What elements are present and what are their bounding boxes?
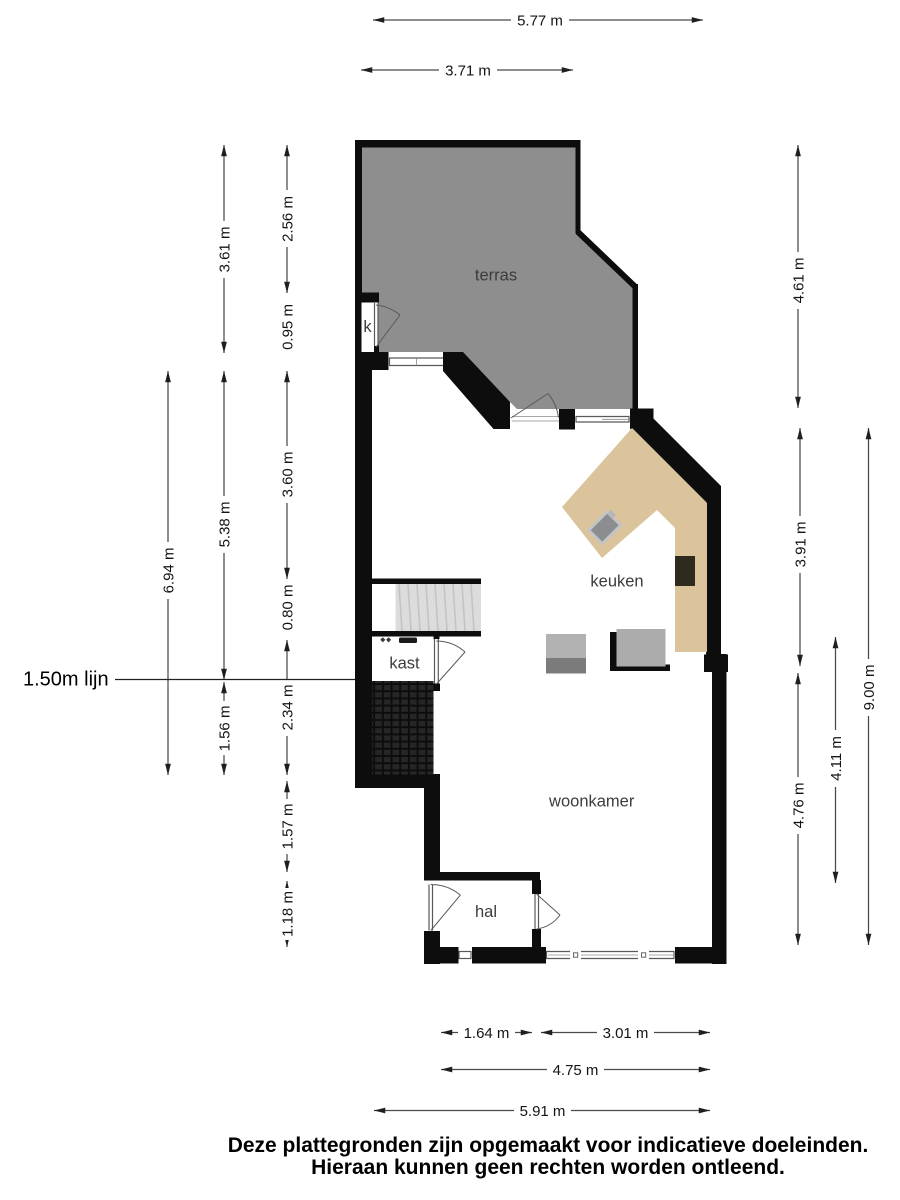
- svg-text:4.75 m: 4.75 m: [553, 1062, 599, 1079]
- svg-text:3.91 m: 3.91 m: [792, 522, 809, 568]
- svg-text:0.80 m: 0.80 m: [279, 585, 296, 631]
- svg-text:4.11 m: 4.11 m: [828, 736, 845, 781]
- svg-text:9.00 m: 9.00 m: [861, 665, 878, 711]
- svg-text:terras: terras: [475, 267, 517, 285]
- svg-text:6.94 m: 6.94 m: [160, 548, 177, 594]
- svg-text:hal: hal: [475, 903, 497, 921]
- svg-text:keuken: keuken: [590, 573, 643, 591]
- svg-text:5.91 m: 5.91 m: [520, 1103, 566, 1120]
- svg-text:1.57 m: 1.57 m: [279, 804, 296, 850]
- svg-text:woonkamer: woonkamer: [548, 793, 635, 811]
- svg-text:1.64 m: 1.64 m: [464, 1025, 510, 1042]
- svg-text:2.34 m: 2.34 m: [279, 685, 296, 731]
- svg-text:1.50m lijn: 1.50m lijn: [23, 669, 109, 691]
- svg-text:3.01 m: 3.01 m: [603, 1025, 649, 1042]
- svg-text:kast: kast: [389, 655, 420, 673]
- svg-text:4.76 m: 4.76 m: [790, 783, 807, 829]
- svg-text:5.38 m: 5.38 m: [216, 502, 233, 548]
- svg-text:5.77 m: 5.77 m: [517, 12, 563, 29]
- svg-text:3.60 m: 3.60 m: [279, 452, 296, 498]
- svg-text:k: k: [363, 318, 372, 336]
- svg-text:4.61 m: 4.61 m: [790, 258, 807, 304]
- svg-text:Hieraan kunnen geen rechten wo: Hieraan kunnen geen rechten worden ontle…: [311, 1156, 785, 1179]
- svg-text:2.56 m: 2.56 m: [279, 196, 296, 242]
- svg-text:1.56 m: 1.56 m: [216, 706, 233, 752]
- svg-text:1.18 m: 1.18 m: [279, 891, 296, 937]
- svg-text:3.71 m: 3.71 m: [445, 62, 491, 79]
- svg-text:0.95 m: 0.95 m: [279, 304, 296, 350]
- svg-text:3.61 m: 3.61 m: [216, 227, 233, 273]
- svg-text:Deze plattegronden zijn opgema: Deze plattegronden zijn opgemaakt voor i…: [228, 1134, 869, 1157]
